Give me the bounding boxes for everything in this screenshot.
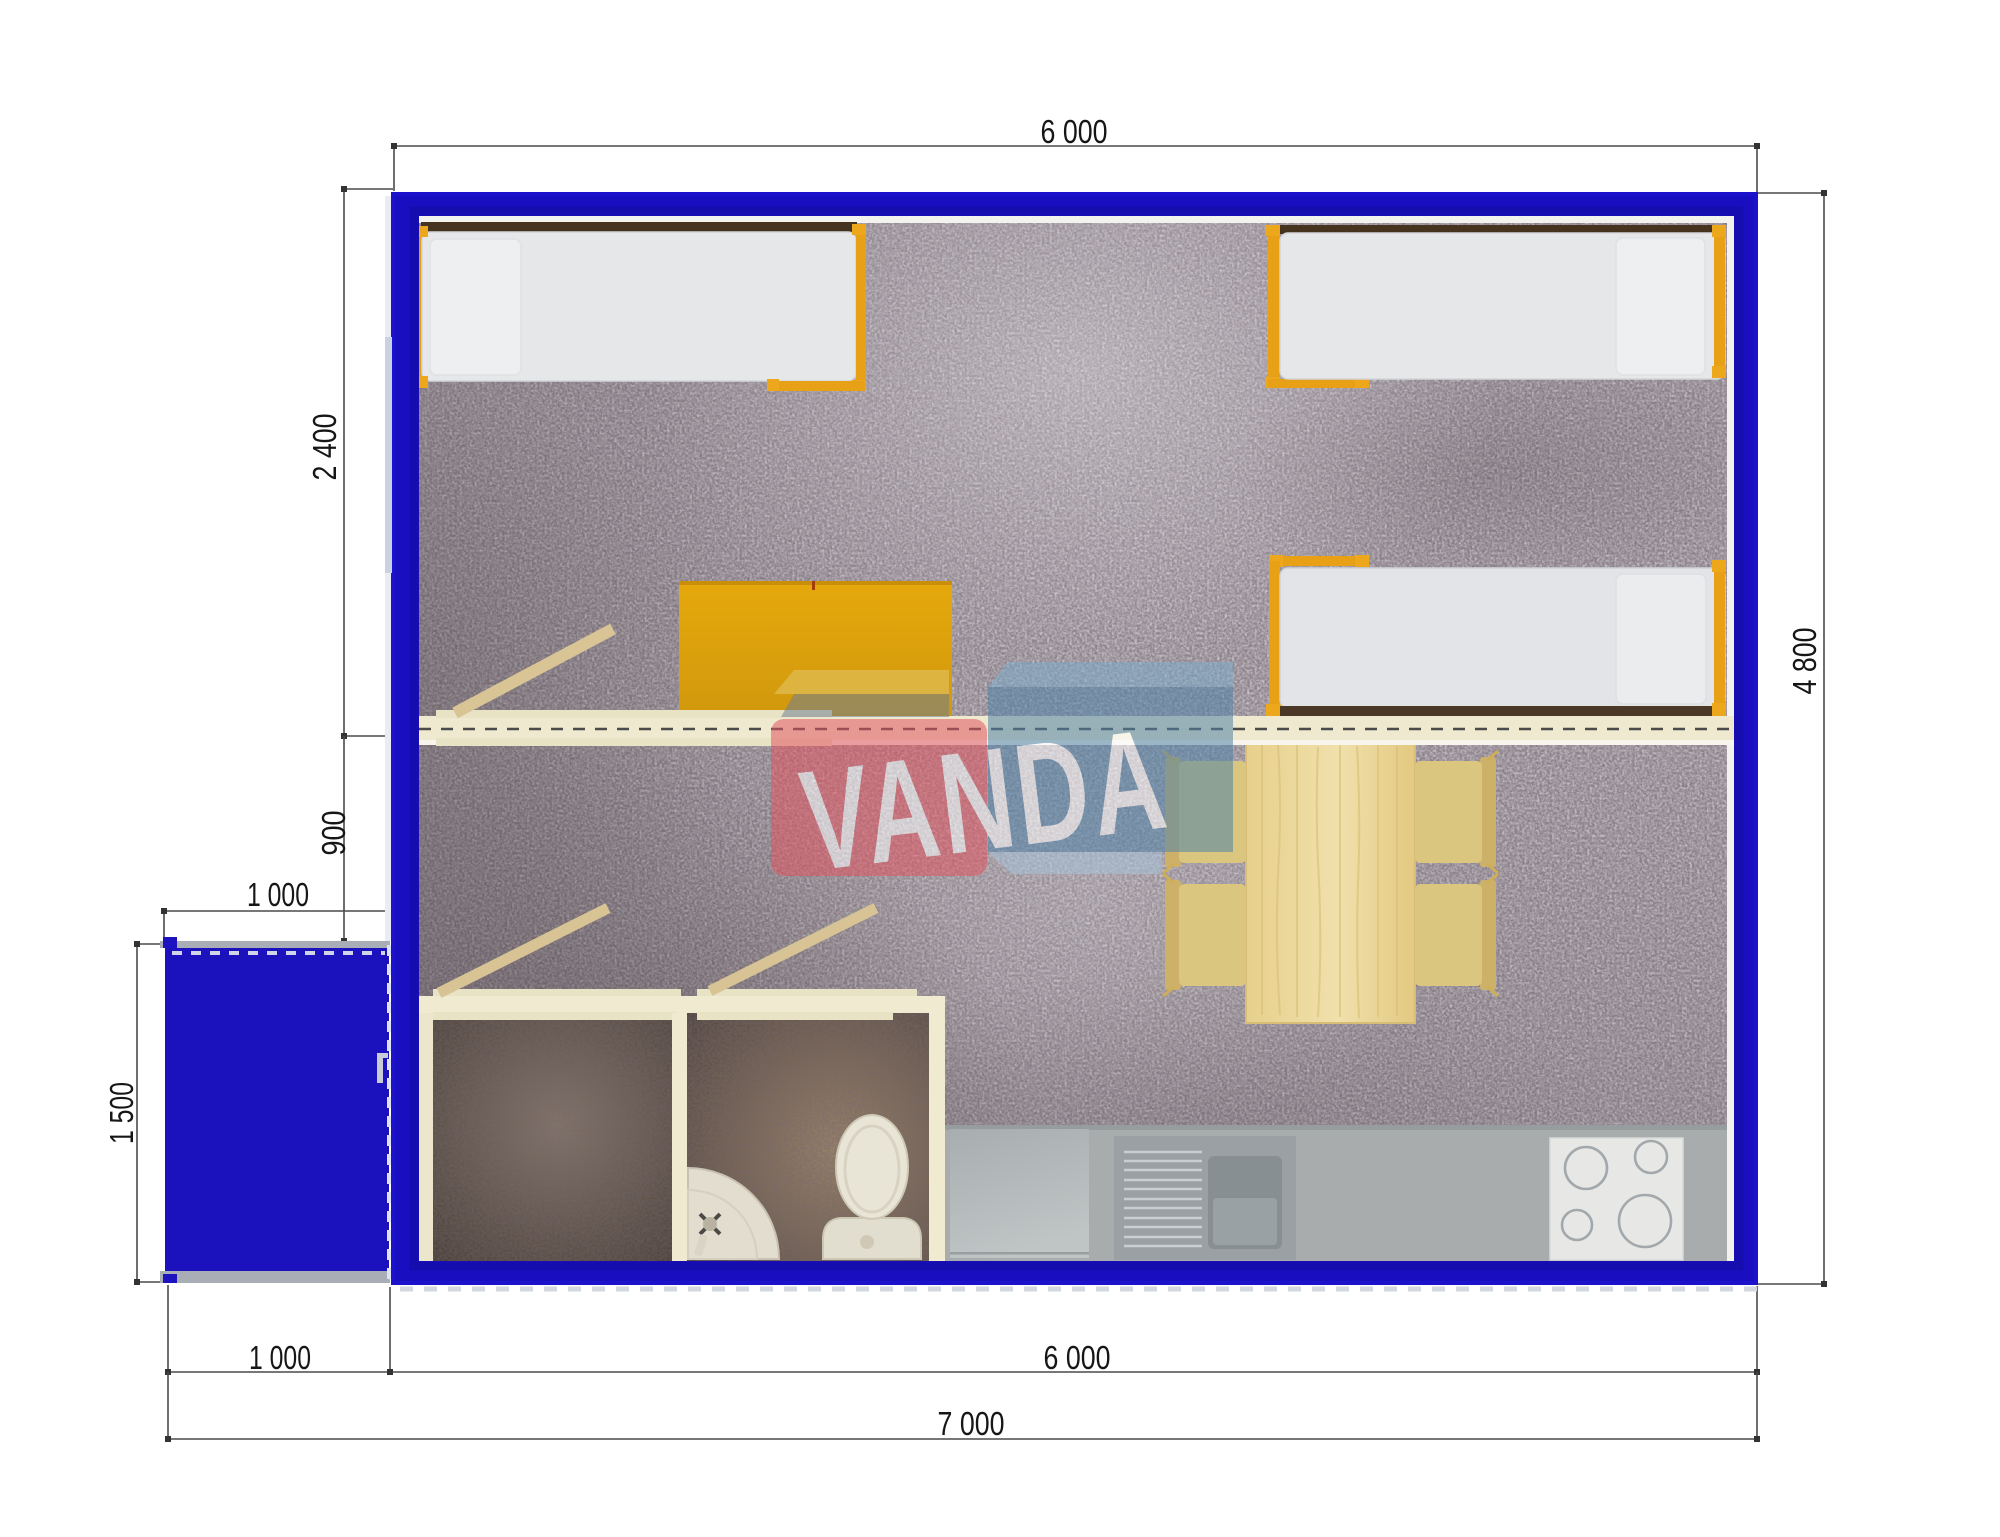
- svg-text:4 800: 4 800: [1786, 628, 1823, 695]
- svg-text:900: 900: [315, 811, 352, 856]
- svg-text:6 000: 6 000: [1044, 1339, 1111, 1376]
- svg-text:1 000: 1 000: [249, 1339, 311, 1376]
- svg-text:1 500: 1 500: [103, 1082, 140, 1144]
- svg-text:2 400: 2 400: [306, 414, 343, 481]
- svg-text:1 000: 1 000: [247, 876, 309, 913]
- svg-text:7 000: 7 000: [938, 1405, 1005, 1442]
- svg-text:6 000: 6 000: [1041, 113, 1108, 150]
